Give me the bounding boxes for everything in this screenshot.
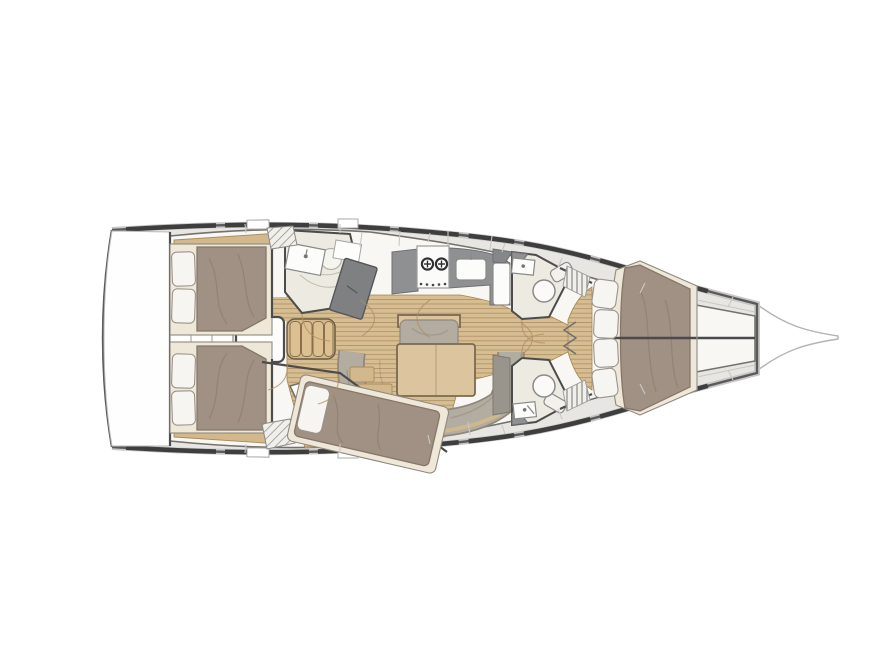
companionway-steps [287, 319, 335, 359]
pillow [171, 289, 195, 324]
louver-locker [267, 226, 297, 249]
stove-2-burner [417, 246, 449, 288]
hull-cushion [593, 338, 618, 367]
toilet [533, 375, 555, 397]
pillow [171, 354, 195, 389]
mattress [197, 247, 266, 331]
hull-cushion [591, 367, 619, 398]
aft-cabin-port [170, 233, 280, 335]
wet-locker [493, 355, 510, 415]
toilet [533, 280, 555, 302]
bowsprit [758, 305, 838, 370]
side-table [350, 367, 374, 382]
pillow [171, 391, 195, 426]
sink [513, 402, 536, 419]
transom-platform [104, 231, 170, 446]
sink [511, 258, 534, 275]
mattress [197, 346, 266, 430]
pillow [171, 252, 195, 287]
hull-cushion [593, 309, 618, 338]
fridge [493, 263, 510, 305]
salon-table [397, 344, 475, 396]
counter-left [392, 249, 418, 294]
yacht-floor-plan [0, 0, 890, 667]
hull-cushion [591, 278, 619, 309]
